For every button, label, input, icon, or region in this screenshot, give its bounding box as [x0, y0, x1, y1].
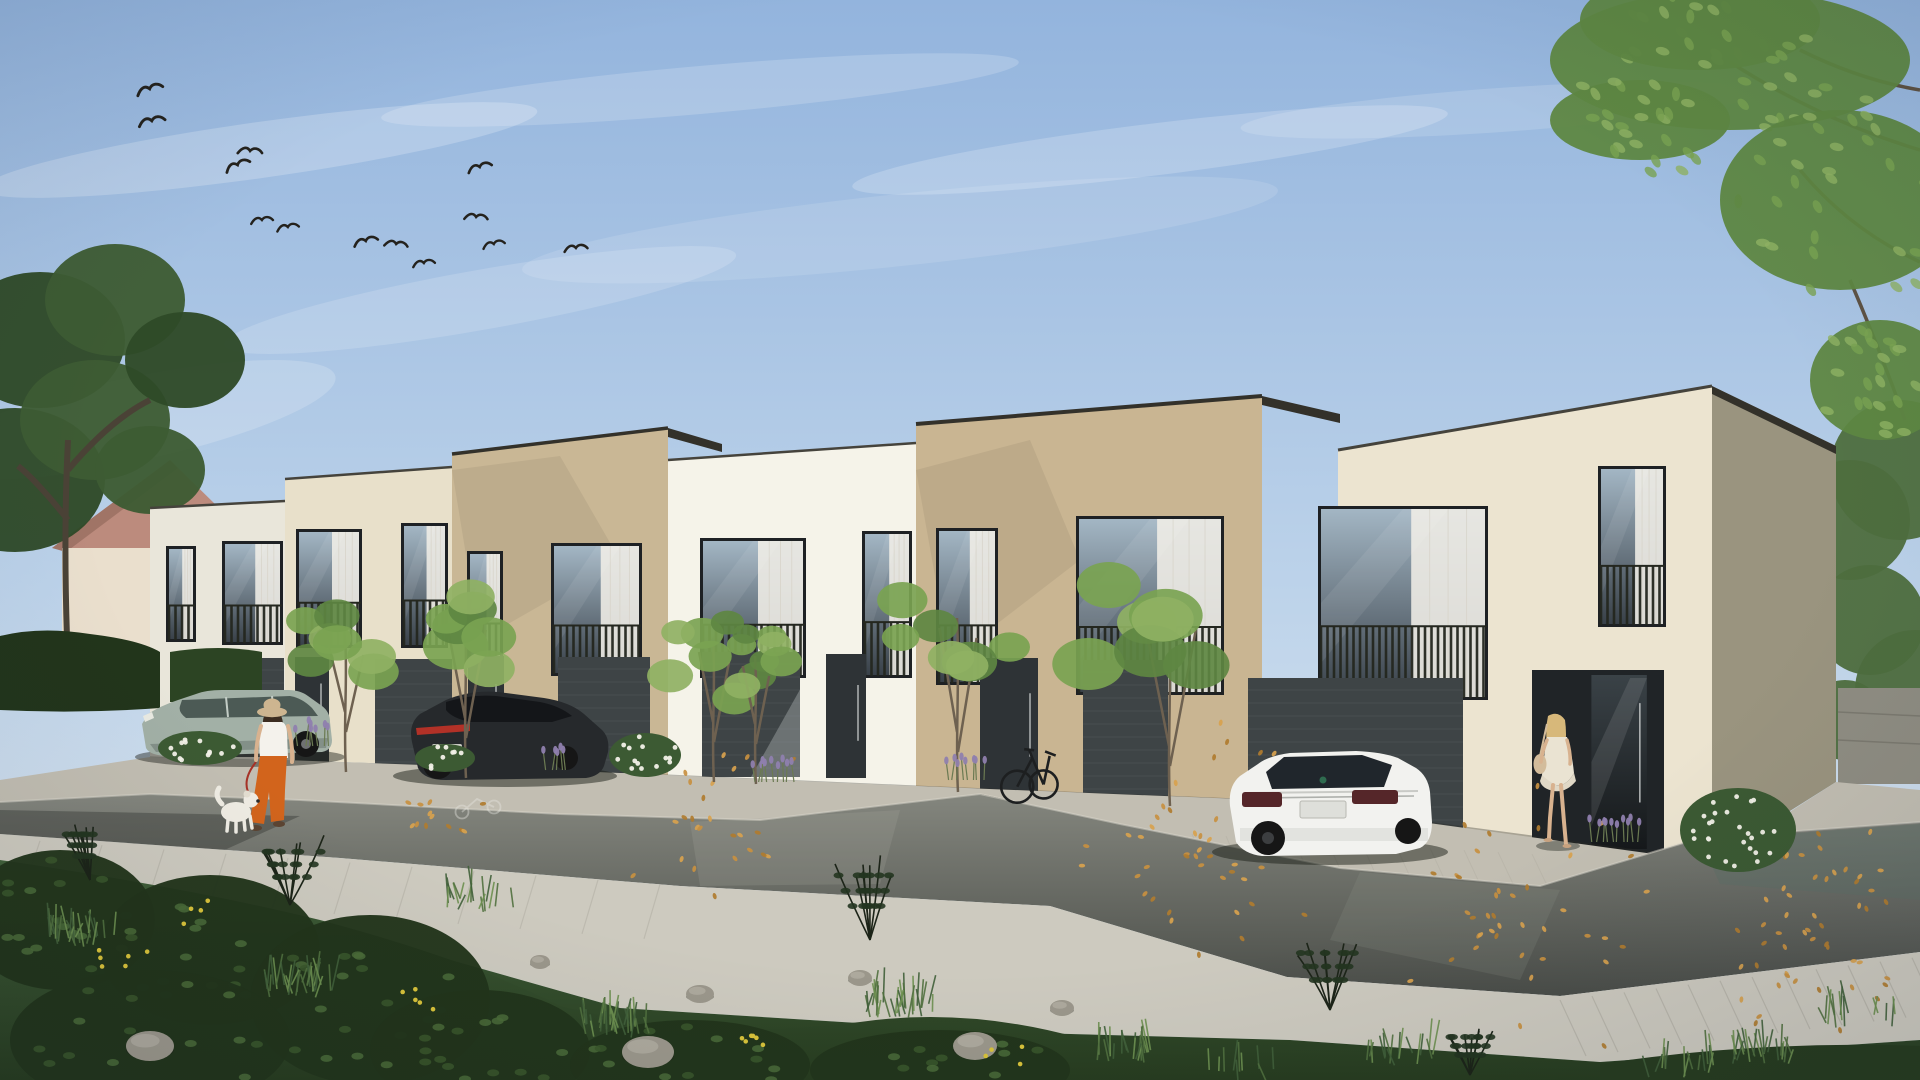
architectural-rendering-townhouses: [0, 0, 1920, 1080]
vignette: [0, 0, 1920, 1080]
